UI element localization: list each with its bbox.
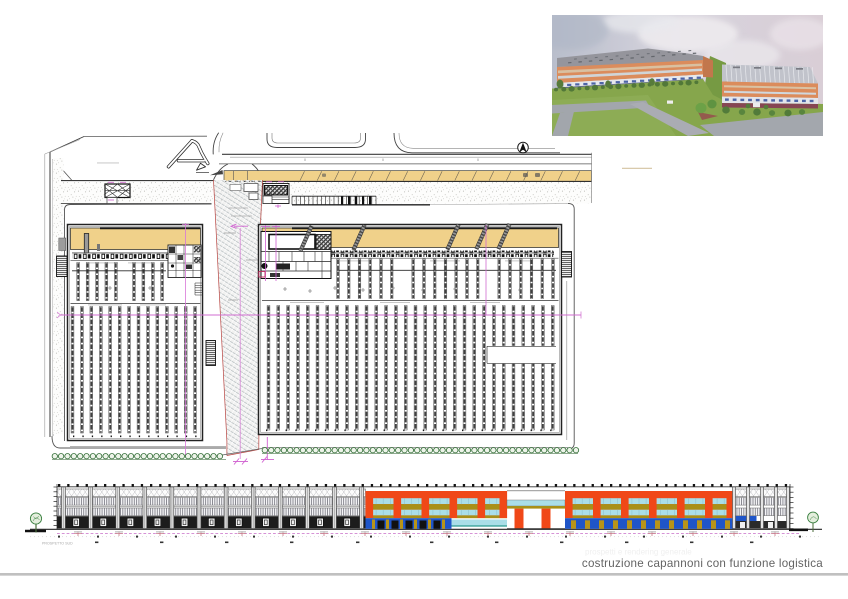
svg-text:costruzione capannoni con funz: costruzione capannoni con funzione logis… [582,557,823,570]
svg-text:prospetti e rendering generale: prospetti e rendering generale [585,548,692,557]
svg-text:PROSPETTO SUD: PROSPETTO SUD [42,542,73,546]
